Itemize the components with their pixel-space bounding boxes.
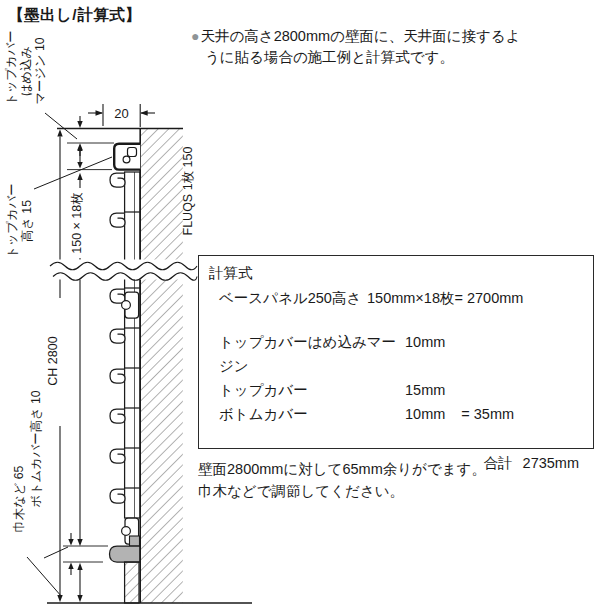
calc-row-label: ボトムカバー [219,402,405,426]
bottom-cover-profile [110,546,140,562]
calc-row-value: 150mm×18枚= 2700mm [367,286,523,310]
skirting-block [125,562,139,603]
top-margin-label-line3: マージン 10 [33,37,47,104]
calc-row-label: ベースパネル250高さ [219,286,367,310]
bottom-assembly [110,518,140,603]
dim-skirting [77,563,82,602]
panel-column [125,172,140,518]
top-cover-label-line1: トップカバー [5,183,19,258]
calc-row-value: 15mm [405,378,445,402]
dim-20-label: 20 [114,106,128,121]
calc-box-title: 計算式 [209,262,583,284]
footer-note: 壁面2800mmに対して65mm余りがでます。 巾木などで調節してください。 [198,459,598,503]
panel-hooks [110,173,125,503]
calculation-box: 計算式 ベースパネル250高さ 150mm×18枚= 2700mm トップカバー… [198,255,594,449]
panel-product-label: FLUQS 1枚 150 [181,146,195,235]
manual-page: { "page": { "title": "【墨出し/計算式】" }, "int… [0,0,607,612]
top-cover-label-line2: 高さ 15 [20,200,34,242]
calc-row-value: 10mm [405,402,445,426]
note-line1: 壁面2800mmに対して65mm余りがでます。 [198,459,598,481]
calc-row-bottom-cover: ボトムカバー 10mm = 35mm [219,402,583,426]
panel-stack-dim-label: 150 × 18枚 [70,192,84,254]
wall-hatch [141,129,183,604]
ceiling-height-label: CH 2800 [46,336,60,385]
top-margin-label-line1: トップカバー [4,30,18,105]
note-line2: 巾木などで調節してください。 [198,481,598,503]
calc-row-extra: = 35mm [461,402,514,426]
dim-bottom-cover [68,533,73,575]
calc-row-top-margin: トップカバーはめ込みマージン 10mm [219,330,583,378]
top-margin-label-line2: はめ込み [19,46,33,96]
bottom-cover-label: ボトムカバー高さ 10 [29,390,43,507]
break-lines [50,260,198,281]
top-cover-profile [114,144,140,170]
leader-lines [27,113,112,597]
skirting-label: 巾木など 65 [12,465,26,532]
calc-row-label: トップカバーはめ込みマージン [219,330,405,378]
calc-row-top-cover: トップカバー 15mm [219,378,583,402]
calc-row-value: 10mm [405,330,445,378]
calc-row-base-panel: ベースパネル250高さ 150mm×18枚= 2700mm [219,286,583,310]
calc-row-label: トップカバー [219,378,405,402]
